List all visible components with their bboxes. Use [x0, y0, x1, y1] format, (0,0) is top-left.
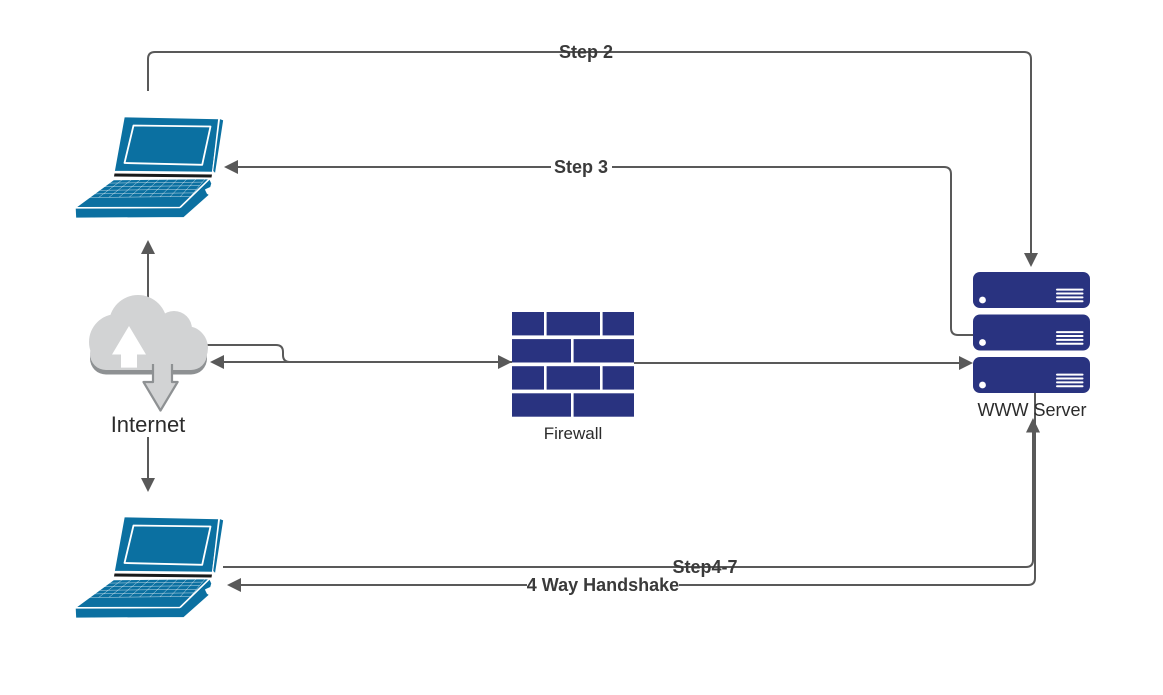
svg-text:Step4-7: Step4-7: [672, 557, 737, 577]
svg-text:Step 2: Step 2: [559, 42, 613, 62]
svg-text:Internet: Internet: [111, 412, 186, 437]
svg-text:4 Way Handshake: 4 Way Handshake: [527, 575, 679, 595]
svg-text:WWW Server: WWW Server: [978, 400, 1087, 420]
svg-text:Firewall: Firewall: [544, 424, 603, 443]
svg-text:Step 3: Step 3: [554, 157, 608, 177]
